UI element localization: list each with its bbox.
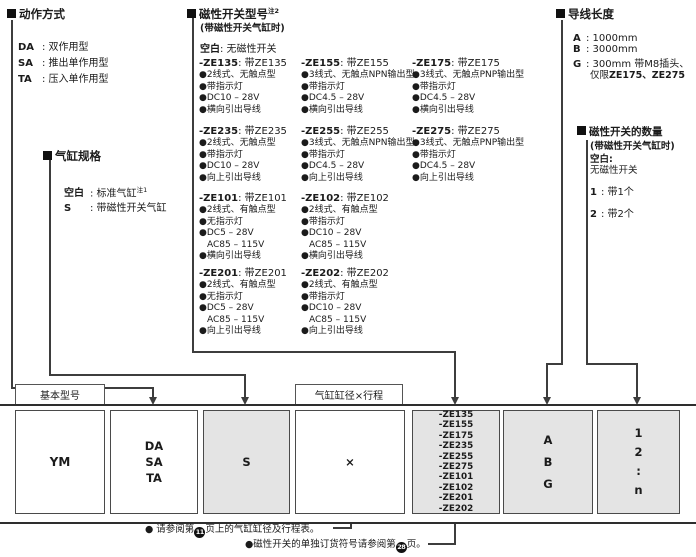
model-title: -ZE201: 带ZE201	[199, 267, 287, 280]
switch-model-ze155: -ZE155: 带ZE155●3线式、无触点NPN输出型●带指示灯●DC4.5 …	[301, 57, 414, 116]
feature-line: ●2线式、有触点型	[199, 280, 287, 292]
footnote-ref: 注1	[137, 186, 148, 194]
box-value: SA	[145, 454, 162, 470]
box-value: -ZE202	[439, 504, 473, 514]
page-number-badge: 28	[396, 542, 407, 553]
option-code: 1	[590, 187, 601, 198]
feature-line: ●带指示灯	[199, 82, 287, 94]
feature-line: ●3线式、无触点NPN输出型	[301, 70, 414, 82]
box-value: :	[636, 462, 641, 481]
box-value: -ZE201	[439, 493, 473, 503]
feature-line: ●DC4.5 – 28V	[412, 93, 524, 105]
option-desc: : 带1个	[601, 187, 634, 198]
action-option-da: DA: 双作用型	[18, 38, 89, 53]
feature-line: ●带指示灯	[301, 217, 389, 229]
model-title: -ZE235: 带ZE235	[199, 125, 287, 138]
connector-qty	[586, 140, 588, 365]
connector-lead-stem	[546, 363, 548, 398]
section-qty-header: 磁性开关的数量	[577, 124, 663, 139]
footnote-switch-order: ●磁性开关的单独订货符号请参阅第28页。	[245, 536, 426, 553]
model-desc: : 带ZE135	[238, 58, 287, 69]
section-spec-header: 气缸规格	[43, 148, 101, 164]
label-basic-model: 基本型号	[15, 384, 105, 405]
box-value: DA	[145, 438, 163, 454]
note-text: ●磁性开关的单独订货符号请参阅第	[245, 539, 396, 550]
page-number-badge: 11	[194, 527, 205, 538]
label-text: 基本型号	[40, 387, 80, 402]
model-code: -ZE202	[301, 268, 340, 279]
model-desc: : 带ZE175	[451, 58, 500, 69]
option-desc: : 带磁性开关气缸	[90, 203, 167, 214]
label-text: 气缸缸径×行程	[315, 387, 383, 402]
model-title: -ZE155: 带ZE155	[301, 57, 414, 70]
section-action-header: 动作方式	[7, 6, 65, 22]
switch-model-ze101: -ZE101: 带ZE101●2线式、有触点型●无指示灯●DC5 – 28VAC…	[199, 192, 287, 263]
feature-ac-line: AC85 – 115V	[301, 240, 389, 252]
box-value: -ZE101	[439, 472, 473, 482]
box-value: -ZE235	[439, 441, 473, 451]
note1-elbow	[350, 524, 352, 529]
note2-elbow	[454, 524, 456, 544]
option-code: G	[573, 59, 586, 70]
model-desc: : 带ZE255	[340, 126, 389, 137]
feature-line: ●横向引出导线	[412, 105, 524, 117]
box-value: TA	[146, 470, 162, 486]
connector-spec-stem	[244, 374, 246, 398]
black-square-marker-icon	[187, 9, 196, 18]
option-desc: : 无磁性开关	[220, 44, 277, 55]
feature-line: ●3线式、无触点PNP输出型	[412, 138, 524, 150]
feature-line: ●2线式、有触点型	[301, 280, 389, 292]
box-value: -ZE175	[439, 431, 473, 441]
option-code: 空白	[64, 184, 90, 199]
model-title: -ZE202: 带ZE202	[301, 267, 389, 280]
model-desc: : 带ZE102	[340, 193, 389, 204]
feature-line: ●带指示灯	[412, 82, 524, 94]
model-desc: : 带ZE235	[238, 126, 287, 137]
black-square-marker-icon	[577, 126, 586, 135]
box-value: S	[242, 455, 250, 469]
section-lead-header: 导线长度	[556, 6, 614, 22]
connector-action	[11, 20, 13, 389]
switch-option-blank: 空白: 无磁性开关	[200, 40, 277, 55]
code-box-switch-qty: 12:n	[597, 410, 680, 514]
option-desc: : 标准气缸	[90, 188, 137, 199]
lead-option-a: A: 1000mm	[573, 33, 637, 44]
action-option-ta: TA: 压入单作用型	[18, 70, 109, 85]
code-box-bore-stroke: ×	[295, 410, 405, 514]
feature-line: ●无指示灯	[199, 217, 287, 229]
feature-line: ●DC4.5 – 28V	[301, 93, 414, 105]
feature-line: ●DC10 – 28V	[199, 93, 287, 105]
box-value: G	[543, 473, 552, 495]
connector-switch	[192, 18, 194, 353]
switch-model-ze235: -ZE235: 带ZE235●2线式、无触点型●带指示灯●DC10 – 28V●…	[199, 125, 287, 184]
feature-line: ●向上引出导线	[199, 326, 287, 338]
feature-line: ●DC5 – 28V	[199, 228, 287, 240]
feature-line: ●带指示灯	[301, 82, 414, 94]
switch-model-ze275: -ZE275: 带ZE275●3线式、无触点PNP输出型●带指示灯●DC4.5 …	[412, 125, 524, 184]
box-value: ×	[345, 455, 355, 469]
note-text: 页上的气缸缸径及行程表。	[205, 524, 319, 535]
feature-line: ●2线式、有触点型	[301, 205, 389, 217]
code-box-lead-length: ABG	[503, 410, 593, 514]
switch-model-ze102: -ZE102: 带ZE102●2线式、有触点型●带指示灯●DC10 – 28VA…	[301, 192, 389, 263]
black-square-marker-icon	[556, 9, 565, 18]
model-desc: : 带ZE201	[238, 268, 287, 279]
qty-subtitle: (带磁性开关气缸时)	[590, 138, 675, 152]
option-code: S	[64, 203, 90, 214]
table-top-rule	[0, 404, 696, 406]
option-code: TA	[18, 74, 42, 85]
note-codes: ZE175、ZE275	[609, 70, 685, 81]
black-square-marker-icon	[7, 9, 16, 18]
connector-switch-stem	[454, 351, 456, 398]
spec-option-s: S: 带磁性开关气缸	[64, 199, 167, 214]
section-title: 磁性开关的数量	[589, 126, 663, 138]
model-code: -ZE175	[412, 58, 451, 69]
box-value: 2	[634, 443, 642, 462]
action-option-sa: SA: 推出单作用型	[18, 54, 109, 69]
feature-line: ●向上引出导线	[301, 326, 389, 338]
feature-line: ●带指示灯	[301, 292, 389, 304]
box-value: A	[544, 429, 553, 451]
section-title: 导线长度	[568, 7, 614, 21]
feature-line: ●DC4.5 – 28V	[301, 161, 414, 173]
box-value: -ZE102	[439, 483, 473, 493]
model-code: -ZE255	[301, 126, 340, 137]
feature-ac-line: AC85 – 115V	[199, 240, 287, 252]
box-value: B	[544, 451, 553, 473]
feature-line: ●2线式、有触点型	[199, 205, 287, 217]
table-bottom-rule	[0, 522, 696, 524]
qty-option-2: 2: 带2个	[590, 205, 634, 220]
connector-spec-h	[49, 374, 246, 376]
feature-line: ●DC10 – 28V	[199, 161, 287, 173]
ordering-code-diagram: 动作方式 气缸规格 磁性开关型号注2 导线长度 磁性开关的数量 DA: 双作用型…	[0, 0, 696, 557]
feature-line: ●向上引出导线	[301, 173, 414, 185]
feature-ac-line: AC85 – 115V	[301, 315, 389, 327]
code-box-switch-model: -ZE135-ZE155-ZE175-ZE235-ZE255-ZE275-ZE1…	[412, 410, 500, 514]
switch-model-ze135: -ZE135: 带ZE135●2线式、无触点型●带指示灯●DC10 – 28V●…	[199, 57, 287, 116]
option-code: B	[573, 44, 586, 55]
box-value: -ZE275	[439, 462, 473, 472]
lead-option-g-note: 仅限ZE175、ZE275	[590, 67, 685, 81]
feature-line: ●横向引出导线	[301, 105, 414, 117]
box-value: -ZE255	[439, 452, 473, 462]
option-desc: : 带2个	[601, 209, 634, 220]
feature-line: ●向上引出导线	[199, 173, 287, 185]
connector-spec	[49, 160, 51, 376]
switch-subtitle: (带磁性开关气缸时)	[200, 20, 285, 34]
switch-model-ze202: -ZE202: 带ZE202●2线式、有触点型●带指示灯●DC10 – 28VA…	[301, 267, 389, 338]
feature-line: ●带指示灯	[412, 150, 524, 162]
option-desc: : 1000mm	[586, 33, 637, 44]
feature-line: ●带指示灯	[199, 150, 287, 162]
feature-line: ●3线式、无触点NPN输出型	[301, 138, 414, 150]
model-desc: : 带ZE155	[340, 58, 389, 69]
option-code: 空白	[200, 40, 220, 55]
option-code: 2	[590, 209, 601, 220]
model-desc: : 带ZE202	[340, 268, 389, 279]
model-code: -ZE235	[199, 126, 238, 137]
model-title: -ZE175: 带ZE175	[412, 57, 524, 70]
feature-line: ●向上引出导线	[412, 173, 524, 185]
footnote-ref: 注2	[268, 7, 279, 15]
option-desc: : 双作用型	[42, 42, 89, 53]
model-code: -ZE102	[301, 193, 340, 204]
code-box-action: DASATA	[110, 410, 198, 514]
option-code: DA	[18, 42, 42, 53]
model-title: -ZE135: 带ZE135	[199, 57, 287, 70]
switch-model-ze255: -ZE255: 带ZE255●3线式、无触点NPN输出型●带指示灯●DC4.5 …	[301, 125, 414, 184]
feature-line: ●横向引出导线	[301, 251, 389, 263]
model-code: -ZE275	[412, 126, 451, 137]
feature-line: ●DC10 – 28V	[301, 228, 389, 240]
section-title: 气缸规格	[55, 149, 101, 163]
black-square-marker-icon	[43, 151, 52, 160]
feature-line: ●DC5 – 28V	[199, 303, 287, 315]
feature-line: ●DC10 – 28V	[301, 303, 389, 315]
code-box-basic-model: YM	[15, 410, 105, 514]
model-code: -ZE135	[199, 58, 238, 69]
box-value: n	[634, 481, 642, 500]
feature-line: ●带指示灯	[301, 150, 414, 162]
connector-qty-stem	[636, 363, 638, 398]
connector-qty-h	[586, 363, 638, 365]
note-text: ● 请参阅第	[145, 524, 194, 535]
box-value: -ZE155	[439, 420, 473, 430]
connector-lead-h	[546, 363, 563, 365]
connector-switch-h	[192, 351, 455, 353]
note-text: 仅限	[590, 70, 609, 81]
option-code: A	[573, 33, 586, 44]
section-title: 动作方式	[19, 7, 65, 21]
label-bore-stroke: 气缸缸径×行程	[295, 384, 403, 405]
feature-line: ●横向引出导线	[199, 251, 287, 263]
model-title: -ZE275: 带ZE275	[412, 125, 524, 138]
qty-option-1: 1: 带1个	[590, 183, 634, 198]
model-code: -ZE155	[301, 58, 340, 69]
model-title: -ZE255: 带ZE255	[301, 125, 414, 138]
option-desc: : 压入单作用型	[42, 74, 109, 85]
model-code: -ZE201	[199, 268, 238, 279]
switch-model-ze175: -ZE175: 带ZE175●3线式、无触点PNP输出型●带指示灯●DC4.5 …	[412, 57, 524, 116]
note-text: 页。	[407, 539, 426, 550]
section-title: 磁性开关型号	[199, 7, 268, 21]
model-title: -ZE101: 带ZE101	[199, 192, 287, 205]
feature-line: ●3线式、无触点PNP输出型	[412, 70, 524, 82]
box-value: 1	[634, 424, 642, 443]
qty-blank-desc: 无磁性开关	[590, 162, 638, 176]
feature-line: ●2线式、无触点型	[199, 70, 287, 82]
feature-ac-line: AC85 – 115V	[199, 315, 287, 327]
model-code: -ZE101	[199, 193, 238, 204]
model-title: -ZE102: 带ZE102	[301, 192, 389, 205]
connector-lead	[561, 20, 563, 365]
model-desc: : 带ZE101	[238, 193, 287, 204]
lead-option-b: B: 3000mm	[573, 44, 637, 55]
option-desc: : 推出单作用型	[42, 58, 109, 69]
code-box-spec: S	[203, 410, 290, 514]
option-desc: : 3000mm	[586, 44, 637, 55]
feature-line: ●2线式、无触点型	[199, 138, 287, 150]
box-value: YM	[50, 455, 71, 469]
feature-line: ●横向引出导线	[199, 105, 287, 117]
box-value: -ZE135	[439, 410, 473, 420]
model-desc: : 带ZE275	[451, 126, 500, 137]
feature-line: ●DC4.5 – 28V	[412, 161, 524, 173]
option-code: SA	[18, 58, 42, 69]
note2-line	[428, 543, 456, 545]
switch-model-ze201: -ZE201: 带ZE201●2线式、有触点型●无指示灯●DC5 – 28VAC…	[199, 267, 287, 338]
feature-line: ●无指示灯	[199, 292, 287, 304]
spec-option-blank: 空白: 标准气缸注1	[64, 184, 147, 199]
